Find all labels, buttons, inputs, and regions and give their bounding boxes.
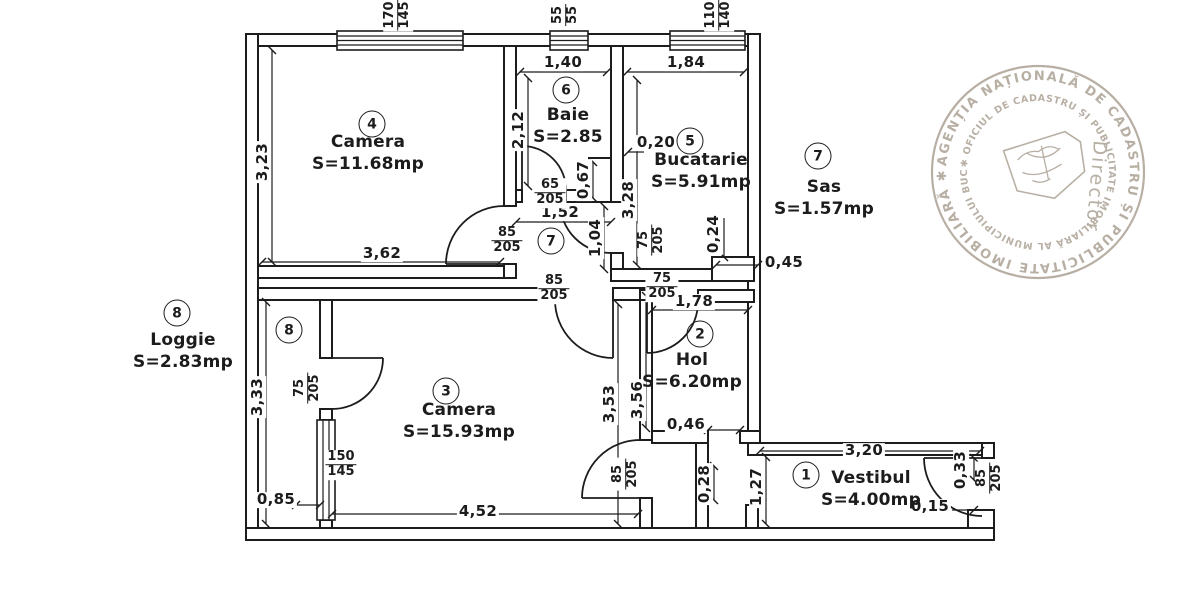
dimension-label: 1,04 <box>588 217 604 259</box>
size-numerator: 65 <box>534 178 565 192</box>
room-area: S=5.91mp <box>651 171 751 193</box>
room-number-badge: 7 <box>538 228 565 255</box>
dimension-label: 1,78 <box>673 294 715 310</box>
room-area: S=1.57mp <box>774 198 874 220</box>
room-label: CameraS=15.93mp <box>403 399 515 443</box>
room-name: Vestibul <box>821 467 921 489</box>
room-label: BucatarieS=5.91mp <box>651 149 751 193</box>
room-number-badge: 2 <box>687 321 714 348</box>
size-denominator: 145 <box>325 465 356 480</box>
room-number-badge: 1 <box>793 462 820 489</box>
size-numerator: 85 <box>491 226 522 240</box>
size-denominator: 205 <box>626 458 641 489</box>
dimension-label: 3,20 <box>843 443 885 459</box>
size-denominator: 205 <box>534 193 565 208</box>
size-numerator: 85 <box>975 462 989 493</box>
size-numerator: 110 <box>704 0 718 31</box>
size-numerator: 75 <box>646 272 677 286</box>
room-label: HolS=6.20mp <box>642 349 742 393</box>
room-name: Bucatarie <box>651 149 751 171</box>
room-number-badge: 7 <box>805 143 832 170</box>
dimension-label: 0,28 <box>697 463 713 505</box>
room-label: CameraS=11.68mp <box>312 131 424 175</box>
size-denominator: 205 <box>646 287 677 302</box>
room-label: LoggieS=2.83mp <box>133 329 233 373</box>
room-label: SasS=1.57mp <box>774 176 874 220</box>
dimension-label: 0,46 <box>665 417 707 433</box>
room-label: VestibulS=4.00mp <box>821 467 921 511</box>
room-number-badge: 8 <box>164 300 191 327</box>
dimension-label: 4,52 <box>457 504 499 520</box>
door-window-size-label: 170145 <box>383 0 413 32</box>
dimension-label: 0,33 <box>953 449 969 491</box>
size-numerator: 150 <box>325 450 356 464</box>
door-window-size-label: 85205 <box>611 457 641 490</box>
room-name: Camera <box>312 131 424 153</box>
room-number-badge: 8 <box>276 317 303 344</box>
size-denominator: 205 <box>652 224 667 255</box>
door-window-size-label: 75205 <box>293 371 323 404</box>
size-denominator: 205 <box>990 462 1005 493</box>
room-name: Loggie <box>133 329 233 351</box>
door-window-size-label: 85205 <box>537 274 570 304</box>
dimension-label: 1,27 <box>749 466 765 508</box>
room-label: BaieS=2.85 <box>533 104 603 148</box>
floorplan-canvas: AGENȚIA NAȚIONALĂ DE CADASTRU ȘI PUBLICI… <box>0 0 1200 593</box>
size-numerator: 85 <box>611 458 625 489</box>
dimension-label: 1,40 <box>542 55 584 71</box>
room-name: Sas <box>774 176 874 198</box>
door-window-size-label: 150145 <box>324 450 357 480</box>
size-numerator: 75 <box>637 224 651 255</box>
door-window-size-label: 75205 <box>637 223 667 256</box>
dimension-label: 0,24 <box>706 213 722 255</box>
dimension-label: 2,12 <box>511 109 527 151</box>
room-area: S=6.20mp <box>642 371 742 393</box>
door-window-size-label: 85205 <box>490 226 523 256</box>
annotations-layer: 3,233,621,402,121,843,280,200,671,521,04… <box>0 0 1200 593</box>
size-denominator: 55 <box>566 4 581 26</box>
room-area: S=15.93mp <box>403 421 515 443</box>
size-denominator: 145 <box>398 0 413 31</box>
dimension-label: 0,45 <box>763 255 805 271</box>
room-name: Baie <box>533 104 603 126</box>
room-name: Hol <box>642 349 742 371</box>
dimension-label: 3,23 <box>255 141 271 183</box>
room-area: S=11.68mp <box>312 153 424 175</box>
door-window-size-label: 85205 <box>975 461 1005 494</box>
room-area: S=2.85 <box>533 126 603 148</box>
door-window-size-label: 75205 <box>645 272 678 302</box>
dimension-label: 3,62 <box>361 246 403 262</box>
size-denominator: 205 <box>491 241 522 256</box>
dimension-label: 0,67 <box>576 159 592 201</box>
size-numerator: 75 <box>293 372 307 403</box>
room-area: S=2.83mp <box>133 351 233 373</box>
size-numerator: 55 <box>551 4 565 26</box>
door-window-size-label: 5555 <box>551 3 581 27</box>
dimension-label: 3,28 <box>621 179 637 221</box>
dimension-label: 1,84 <box>665 55 707 71</box>
size-numerator: 170 <box>383 0 397 31</box>
door-window-size-label: 65205 <box>533 178 566 208</box>
size-denominator: 205 <box>538 289 569 304</box>
size-denominator: 205 <box>308 372 323 403</box>
door-window-size-label: 110140 <box>704 0 734 32</box>
dimension-label: 3,53 <box>602 383 618 425</box>
size-numerator: 85 <box>538 274 569 288</box>
room-number-badge: 6 <box>553 77 580 104</box>
room-name: Camera <box>403 399 515 421</box>
dimension-label: 0,85 <box>255 492 297 508</box>
room-area: S=4.00mp <box>821 489 921 511</box>
dimension-label: 3,33 <box>250 376 266 418</box>
size-denominator: 140 <box>719 0 734 31</box>
